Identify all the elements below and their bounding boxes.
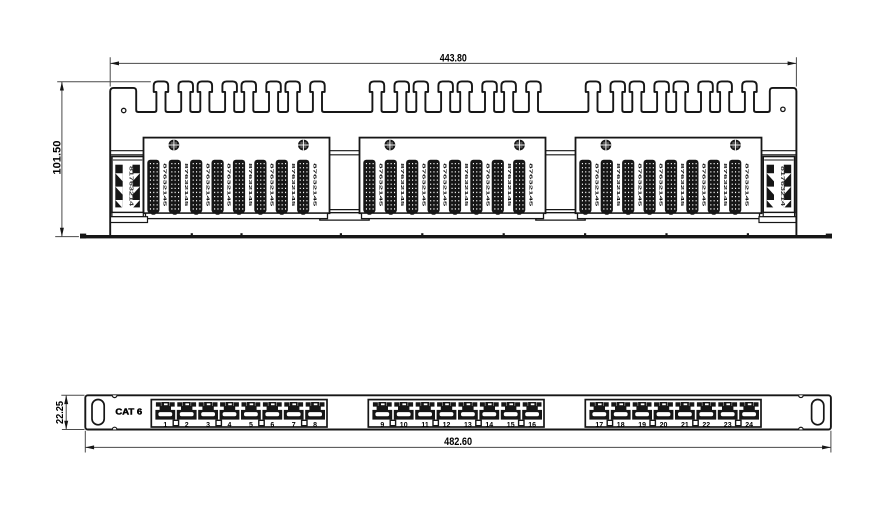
svg-text:87632145: 87632145: [658, 163, 664, 207]
svg-text:87632145: 87632145: [722, 163, 728, 207]
svg-text:87632145: 87632145: [399, 163, 405, 207]
svg-text:87632145: 87632145: [743, 163, 749, 207]
svg-text:10: 10: [400, 422, 408, 429]
svg-text:11: 11: [421, 422, 429, 429]
svg-text:87632145: 87632145: [442, 163, 448, 207]
svg-text:87632145: 87632145: [463, 163, 469, 207]
svg-text:87632145: 87632145: [615, 163, 621, 207]
svg-text:CAT 6: CAT 6: [115, 407, 142, 417]
svg-text:81763214: 81763214: [128, 166, 134, 206]
svg-text:87632145: 87632145: [485, 163, 491, 207]
svg-text:19: 19: [638, 422, 646, 429]
svg-text:101.50: 101.50: [51, 141, 63, 175]
svg-text:87632145: 87632145: [162, 163, 168, 207]
svg-text:87632145: 87632145: [420, 163, 426, 207]
svg-text:18: 18: [617, 422, 625, 429]
svg-text:87632145: 87632145: [506, 163, 512, 207]
svg-text:81763214: 81763214: [779, 166, 785, 206]
svg-text:2: 2: [185, 422, 189, 429]
svg-text:87632145: 87632145: [311, 163, 317, 207]
svg-text:13: 13: [464, 422, 472, 429]
svg-text:15: 15: [507, 422, 515, 429]
svg-text:9: 9: [380, 422, 384, 429]
svg-text:4: 4: [228, 422, 232, 429]
svg-text:5: 5: [249, 422, 253, 429]
svg-text:6: 6: [270, 422, 274, 429]
svg-text:1: 1: [163, 422, 167, 429]
svg-text:22.25: 22.25: [54, 401, 66, 424]
svg-text:482.60: 482.60: [444, 436, 472, 448]
svg-text:16: 16: [528, 422, 536, 429]
svg-text:87632145: 87632145: [247, 163, 253, 207]
svg-text:8: 8: [313, 422, 317, 429]
svg-text:87632145: 87632145: [204, 163, 210, 207]
svg-text:87632145: 87632145: [594, 163, 600, 207]
svg-text:87632145: 87632145: [183, 163, 189, 207]
svg-text:14: 14: [485, 422, 493, 429]
svg-text:87632145: 87632145: [679, 163, 685, 207]
svg-text:12: 12: [443, 422, 451, 429]
svg-text:87632145: 87632145: [701, 163, 707, 207]
svg-text:21: 21: [681, 422, 689, 429]
svg-text:17: 17: [595, 422, 603, 429]
svg-text:7: 7: [292, 422, 296, 429]
svg-text:23: 23: [724, 422, 732, 429]
svg-text:24: 24: [745, 422, 753, 429]
svg-text:20: 20: [660, 422, 668, 429]
svg-text:87632145: 87632145: [290, 163, 296, 207]
svg-text:87632145: 87632145: [226, 163, 232, 207]
svg-text:443.80: 443.80: [440, 53, 467, 65]
svg-text:22: 22: [702, 422, 710, 429]
svg-text:87632145: 87632145: [269, 163, 275, 207]
svg-text:87632145: 87632145: [378, 163, 384, 207]
svg-text:3: 3: [206, 422, 210, 429]
svg-text:87632145: 87632145: [636, 163, 642, 207]
svg-text:87632145: 87632145: [527, 163, 533, 207]
